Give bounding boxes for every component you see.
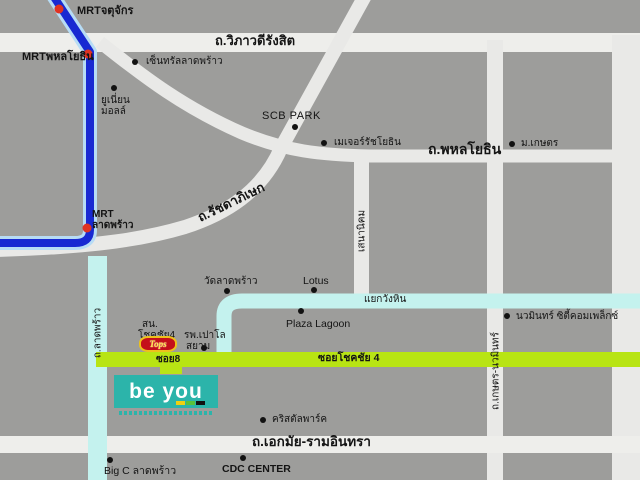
beyou-chip-yellow (176, 401, 185, 405)
beyou-logo-chips (176, 401, 205, 405)
poi-label-crystal-park: คริสตัลพาร์ค (272, 414, 327, 425)
road-label-kaset-nawamin: ถ.เกษตร-นวมินทร์ (491, 332, 502, 410)
poi-dot-union-mall (111, 85, 117, 91)
tops-logo: Tops (139, 336, 177, 352)
poi-label-lotus: Lotus (303, 276, 329, 287)
mrt-label-ladprao: MRT ลาดพร้าว (92, 209, 133, 231)
road-label-phahonyothin: ถ.พหลโยธิน (428, 144, 501, 155)
poi-label-scb-park: SCB PARK (262, 111, 321, 122)
poi-dot-cdc-center (240, 455, 246, 461)
road-label-vibhavadi: ถ.วิภาวดีรังสิต (215, 35, 295, 46)
poi-label-nawamin-city: นวมินทร์ ซิตี้คอมเพล็กซ์ (516, 311, 618, 322)
poi-label-bigc-ladprao: Big C ลาดพร้าว (104, 466, 176, 477)
mrt-label-chatuchak: MRTจตุจักร (77, 6, 133, 17)
beyou-logo-text: be you (129, 380, 203, 404)
road-label-ekamai-ramintra: ถ.เอกมัย-รามอินทรา (252, 436, 371, 447)
road-right-edge (612, 35, 640, 480)
beyou-chip-black (196, 401, 205, 405)
road-label-soi-chokchai4: ซอยโชคชัย 4 (318, 353, 379, 364)
mrt-station-dot-ladprao (83, 224, 92, 233)
location-map: ถ.วิภาวดีรังสิต ถ.พหลโยธิน ถ.รัชดาภิเษก … (0, 0, 640, 480)
beyou-logo: be you (114, 375, 218, 408)
mrt-label-phahonyothin: MRTพหลโยธิน (22, 52, 94, 63)
poi-label-kasetsart: ม.เกษตร (521, 138, 558, 149)
road-label-yaek-wang-hin: แยกวังหิน (364, 294, 406, 305)
poi-label-central-ladprao: เซ็นทรัลลาดพร้าว (146, 56, 223, 67)
poi-dot-crystal-park (260, 417, 266, 423)
poi-dot-lotus (311, 287, 317, 293)
road-label-ladprao: ถ.ลาดพร้าว (93, 308, 104, 358)
road-label-senanikhom: เสนานิคม (357, 210, 368, 252)
poi-dot-nawamin-city (504, 313, 510, 319)
poi-dot-scb-park (292, 124, 298, 130)
poi-dot-plaza-lagoon (298, 308, 304, 314)
poi-label-major-ratchayothin: เมเจอร์รัชโยธิน (334, 137, 401, 148)
road-network (0, 0, 640, 480)
poi-dot-major-ratchayothin (321, 140, 327, 146)
poi-label-plaza-lagoon: Plaza Lagoon (286, 319, 350, 330)
beyou-tagline (119, 411, 214, 415)
poi-dot-wat-ladprao (224, 288, 230, 294)
road-label-soi8: ซอย8 (156, 354, 180, 365)
poi-dot-bigc-ladprao (107, 457, 113, 463)
beyou-chip-green (186, 401, 195, 405)
poi-label-cdc-center: CDC CENTER (222, 464, 291, 475)
road-soi-stub (160, 367, 182, 374)
road-kaset-nawamin (487, 40, 503, 480)
poi-label-union-mall: ยูเนี่ยน มอลล์ (101, 95, 130, 117)
poi-dot-paolo-hospital (201, 345, 207, 351)
mrt-station-dot-chatuchak (55, 5, 64, 14)
poi-dot-kasetsart (509, 141, 515, 147)
poi-label-wat-ladprao: วัดลาดพร้าว (204, 276, 258, 287)
road-ladprao-cyan (88, 256, 107, 480)
poi-dot-central-ladprao (132, 59, 138, 65)
